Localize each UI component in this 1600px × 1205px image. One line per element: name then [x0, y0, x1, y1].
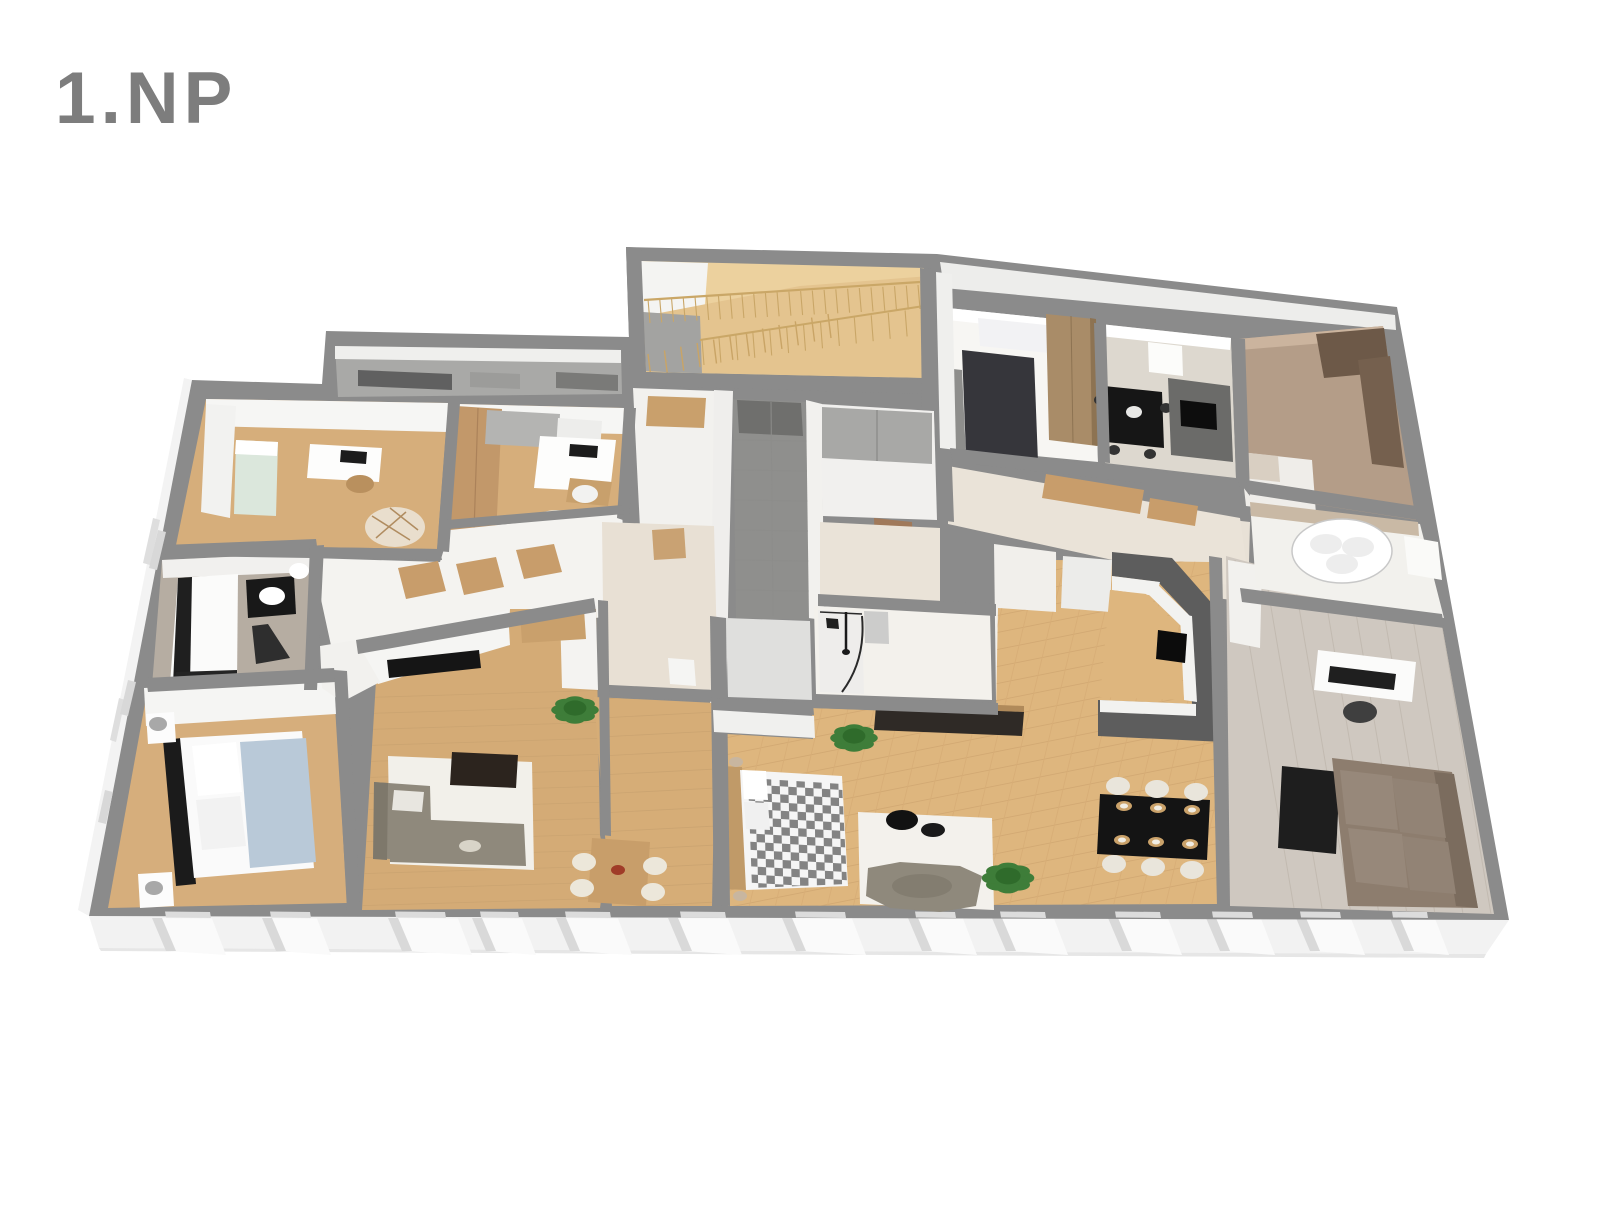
svg-text:1.NP: 1.NP — [55, 58, 237, 139]
